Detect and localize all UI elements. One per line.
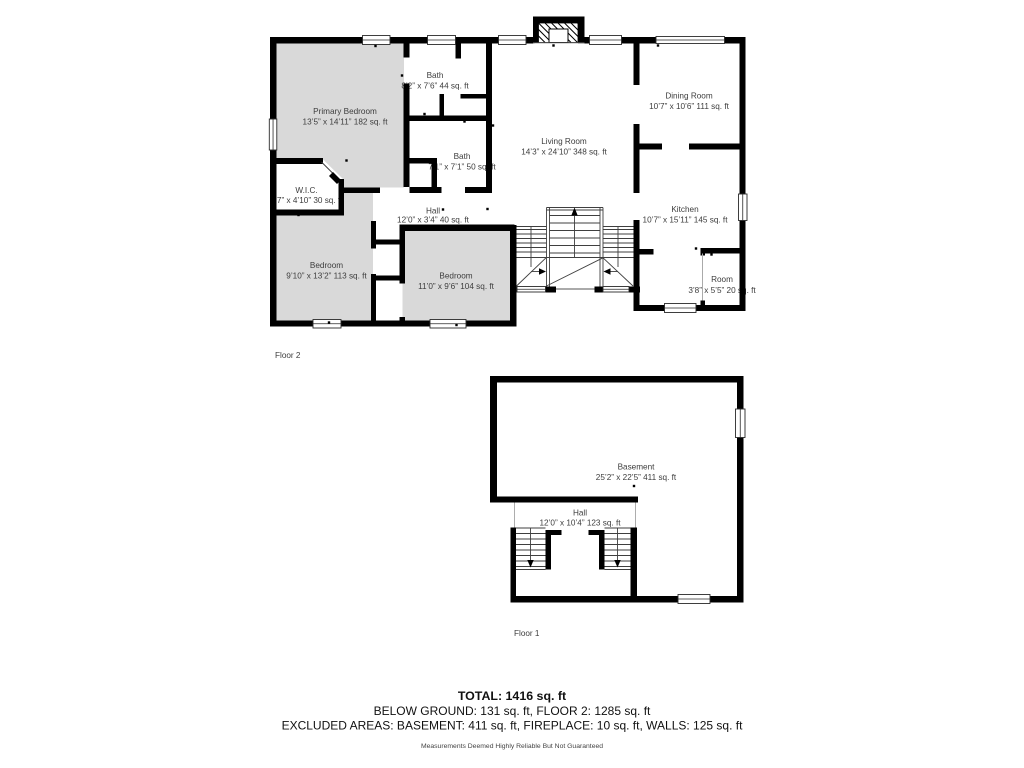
svg-text:12’0” x 3’4” 40 sq. ft: 12’0” x 3’4” 40 sq. ft bbox=[397, 216, 470, 225]
svg-text:Dining Room: Dining Room bbox=[665, 92, 713, 101]
svg-text:Measurements Deemed Highly Rel: Measurements Deemed Highly Reliable But … bbox=[421, 743, 603, 750]
svg-text:13’5” x 14’11” 182 sq. ft: 13’5” x 14’11” 182 sq. ft bbox=[303, 118, 389, 127]
svg-text:Primary Bedroom: Primary Bedroom bbox=[313, 107, 377, 116]
svg-text:8’2” x 7’6” 44 sq. ft: 8’2” x 7’6” 44 sq. ft bbox=[401, 82, 469, 91]
svg-text:10’7” x 10’6” 111 sq. ft: 10’7” x 10’6” 111 sq. ft bbox=[649, 102, 730, 111]
svg-text:W.I.C.: W.I.C. bbox=[295, 186, 317, 195]
svg-text:Bedroom: Bedroom bbox=[310, 261, 343, 270]
svg-text:25’2” x 22’5” 411 sq. ft: 25’2” x 22’5” 411 sq. ft bbox=[596, 473, 677, 482]
svg-text:Room: Room bbox=[711, 275, 733, 284]
svg-text:BELOW GROUND: 131 sq. ft, FLOO: BELOW GROUND: 131 sq. ft, FLOOR 2: 1285 … bbox=[374, 704, 651, 718]
svg-text:5’7” x 4’10” 30 sq. ft: 5’7” x 4’10” 30 sq. ft bbox=[271, 196, 344, 205]
svg-text:10’7” x 15’11” 145 sq. ft: 10’7” x 15’11” 145 sq. ft bbox=[643, 216, 729, 225]
svg-text:3’8” x 5’5” 20 sq. ft: 3’8” x 5’5” 20 sq. ft bbox=[688, 286, 756, 295]
svg-text:14’3” x 24’10” 348 sq. ft: 14’3” x 24’10” 348 sq. ft bbox=[521, 148, 607, 157]
svg-text:Floor 1: Floor 1 bbox=[514, 629, 540, 638]
svg-text:Bath: Bath bbox=[454, 152, 471, 161]
svg-text:11’0” x 9’6” 104 sq. ft: 11’0” x 9’6” 104 sq. ft bbox=[418, 282, 495, 291]
svg-text:Kitchen: Kitchen bbox=[671, 205, 699, 214]
svg-text:9’10” x 13’2” 113 sq. ft: 9’10” x 13’2” 113 sq. ft bbox=[286, 272, 367, 281]
svg-text:Basement: Basement bbox=[618, 463, 656, 472]
svg-text:Floor 2: Floor 2 bbox=[275, 351, 301, 360]
svg-text:Bath: Bath bbox=[427, 71, 444, 80]
svg-text:Hall: Hall bbox=[426, 207, 440, 216]
svg-text:Bedroom: Bedroom bbox=[439, 272, 472, 281]
svg-text:Hall: Hall bbox=[573, 509, 587, 518]
svg-text:TOTAL: 1416 sq. ft: TOTAL: 1416 sq. ft bbox=[458, 689, 566, 703]
svg-text:EXCLUDED AREAS: BASEMENT: 411: EXCLUDED AREAS: BASEMENT: 411 sq. ft, FI… bbox=[282, 719, 744, 733]
svg-text:12’0” x 10’4” 123 sq. ft: 12’0” x 10’4” 123 sq. ft bbox=[539, 519, 621, 528]
svg-text:Living Room: Living Room bbox=[541, 137, 587, 146]
